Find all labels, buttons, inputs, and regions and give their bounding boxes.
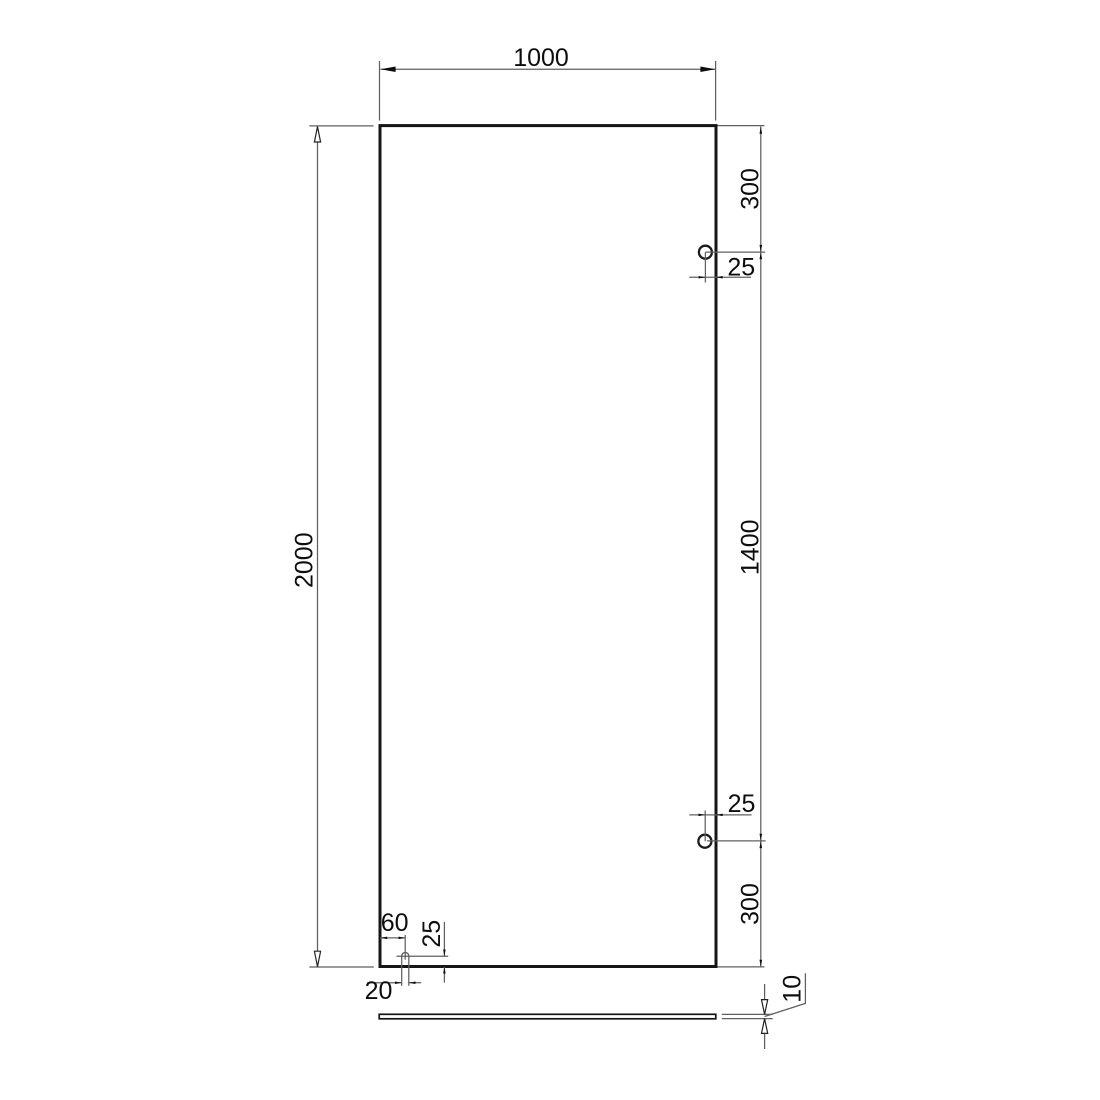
svg-text:20: 20 xyxy=(365,977,393,1005)
svg-text:2000: 2000 xyxy=(291,532,319,588)
svg-text:1000: 1000 xyxy=(513,44,569,72)
svg-text:300: 300 xyxy=(737,168,765,210)
svg-text:10: 10 xyxy=(778,975,806,1003)
svg-text:1400: 1400 xyxy=(737,519,765,575)
svg-text:300: 300 xyxy=(737,883,765,925)
svg-text:60: 60 xyxy=(381,909,409,937)
svg-text:25: 25 xyxy=(727,254,755,282)
svg-text:25: 25 xyxy=(728,790,756,818)
svg-text:25: 25 xyxy=(418,920,446,948)
